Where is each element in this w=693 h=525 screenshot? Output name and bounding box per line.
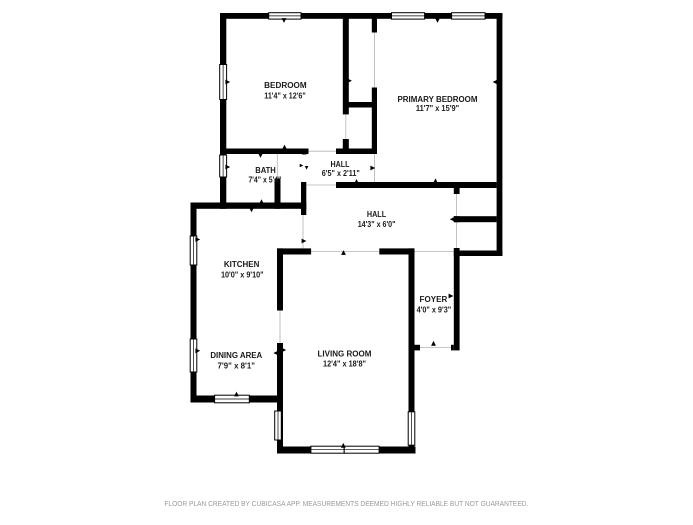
svg-text:BATH: BATH [255,166,276,175]
svg-text:7'4" x 5'4": 7'4" x 5'4" [248,175,281,184]
svg-text:DINING AREA: DINING AREA [210,351,262,360]
svg-text:BEDROOM: BEDROOM [264,81,306,90]
svg-text:11'4" x 12'6": 11'4" x 12'6" [264,91,306,100]
svg-text:LIVING ROOM: LIVING ROOM [318,350,372,359]
svg-text:FLOOR PLAN CREATED BY CUBICASA: FLOOR PLAN CREATED BY CUBICASA APP. MEAS… [164,501,528,508]
svg-text:KITCHEN: KITCHEN [224,260,260,269]
svg-text:HALL: HALL [367,210,387,219]
svg-text:4'0" x 9'3": 4'0" x 9'3" [417,306,452,315]
svg-text:11'7" x 15'9": 11'7" x 15'9" [416,104,460,113]
svg-text:10'0" x 9'10": 10'0" x 9'10" [221,270,264,279]
svg-text:PRIMARY BEDROOM: PRIMARY BEDROOM [398,95,478,104]
svg-text:FOYER: FOYER [420,295,448,304]
svg-text:12'4" x 18'8": 12'4" x 18'8" [323,360,366,369]
svg-text:14'3" x 6'0": 14'3" x 6'0" [358,220,396,229]
svg-text:HALL: HALL [331,160,350,169]
svg-text:7'9" x 8'1": 7'9" x 8'1" [218,362,256,371]
svg-text:6'5" x 2'11": 6'5" x 2'11" [322,169,360,178]
